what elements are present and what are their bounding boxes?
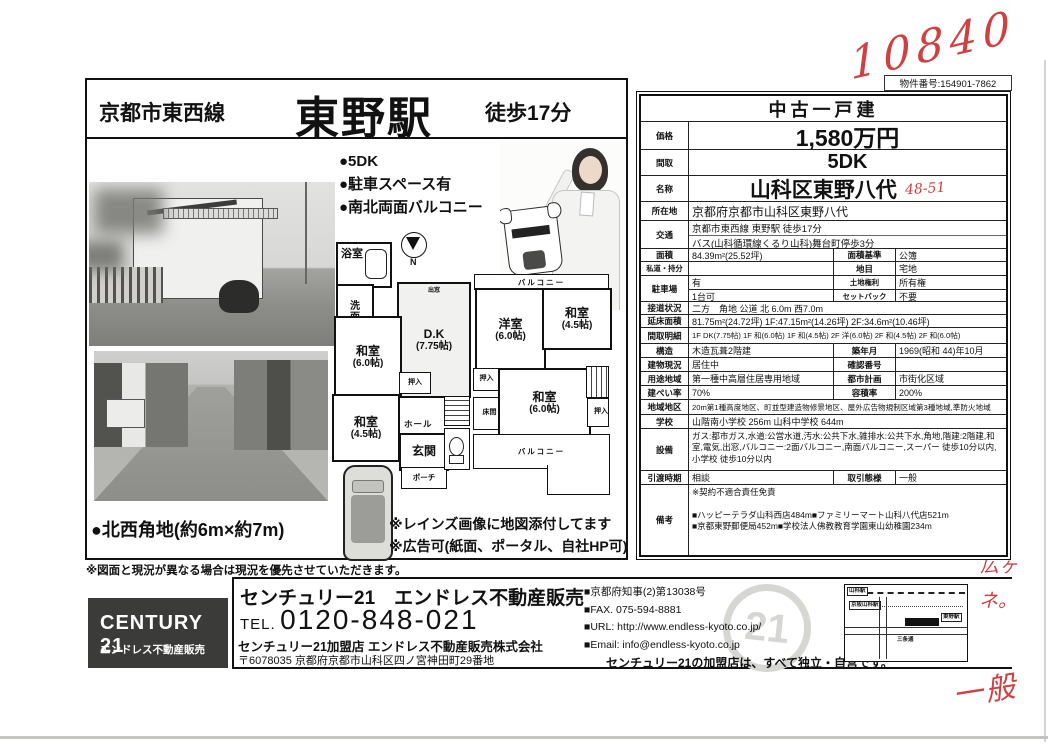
van-shape <box>106 399 145 428</box>
room-label: 和室 <box>565 307 589 321</box>
privacy-blur <box>89 241 123 271</box>
row-value-cell: ※契約不適合責任免責 ■ハッピーテラダ山科西店484m■ファミリーマート山科八代… <box>689 485 1006 555</box>
table-row: 価格1,580万円 <box>641 122 1006 150</box>
row-value-cell: 84.39m²(25.52坪) <box>689 249 834 261</box>
car-icon <box>343 465 393 561</box>
room-label: 玄関 <box>412 445 436 459</box>
rail-line-name: 京都市東西線 <box>99 97 225 127</box>
row-value-cell: 1台可 <box>689 290 834 301</box>
row-header-cell: 学校 <box>641 415 689 428</box>
property-photo-exterior <box>89 182 335 346</box>
ad-note-line: ※広告可(紙面、ポータル、自社HP可) <box>389 535 627 557</box>
ad-note-line: ※レインズ画像に地図添付してます <box>389 513 627 535</box>
stairs-1f <box>444 396 470 426</box>
compass-north-label: N <box>410 257 417 267</box>
room-label: 浴室 <box>341 248 363 261</box>
row-header-cell: 面積基準 <box>834 249 896 261</box>
room-size: (4.5帖) <box>562 320 593 331</box>
room-size: (6.0帖) <box>529 404 560 415</box>
tel-number: 0120-848-021 <box>280 604 478 635</box>
table-row: 交通京都市東西線 東野駅 徒歩17分バス(山科循環線くるり山科)舞台町停歩3分 <box>641 221 1006 249</box>
row-value-cell: 200% <box>896 386 1006 399</box>
room-label: 和室 <box>532 391 556 405</box>
floorplan-room-yoshitsu-2f: 洋室 (6.0帖) <box>475 288 546 372</box>
transit-line: バス(山科循環線くるり山科)舞台町停歩3分 <box>689 235 1006 248</box>
floorplan-room-bath: 浴室 <box>336 242 392 288</box>
table-row: 間取明細1F DK(7.75帖) 1F 和(6.0帖) 1F 和(4.5帖) 2… <box>641 328 1006 344</box>
license-block: ■京都府知事(2)第13038号 ■FAX. 075-594-8881 ■URL… <box>584 584 761 654</box>
license-line: ■Email: info@endless-kyoto.co.jp <box>584 637 761 655</box>
table-row: 間取5DK <box>641 150 1006 176</box>
row-value-cell: 5DK <box>689 150 1006 175</box>
row-header-cell: 間取 <box>641 150 689 175</box>
table-row: 設備ガス:都市ガス,水道:公営水道,汚水:公共下水,雑排水:公共下水,角地,階建… <box>641 429 1006 471</box>
table-row: 延床面積81.75m²(24.72坪) 1F:47.15m²(14.26坪) 2… <box>641 315 1006 328</box>
balcony-label: バルコニー <box>518 277 565 288</box>
floorplan-room-washitsu45-2f: 和室 (4.5帖) <box>542 288 612 350</box>
room-label: 和室 <box>354 416 378 430</box>
license-line: ■FAX. 075-594-8881 <box>584 602 761 620</box>
floorplan-closet-1f: 押入 <box>399 372 431 394</box>
row-value-cell <box>689 262 834 275</box>
row-value-cell: 一般 <box>896 471 1006 484</box>
floorplan-room-washitsu6-2f: 和室 (6.0帖) <box>498 368 591 438</box>
row-header-cell: 地域地区 <box>641 400 689 414</box>
row-header-cell: 築年月 <box>834 344 896 357</box>
floorplan-room-washitsu6-1f: 和室 (6.0帖) <box>334 316 402 398</box>
handwritten-note: 48-51 <box>904 179 945 198</box>
bathtub-icon <box>365 249 387 279</box>
compass-icon: N <box>401 232 427 258</box>
railway-line <box>857 592 965 594</box>
row-header-cell: 用途地域 <box>641 372 689 385</box>
tel-label: TEL. <box>240 616 276 633</box>
century21-logo: CENTURY 21 エンドレス不動産販売 <box>88 598 228 668</box>
row-header-cell: 建ぺい率 <box>641 386 689 399</box>
row-header-cell: 建物現況 <box>641 358 689 371</box>
row-header-cell: 構造 <box>641 344 689 357</box>
row-value-cell: 不要 <box>896 290 1006 301</box>
room-label: 床間 <box>483 409 491 417</box>
agency-address: 〒6078035 京都府京都市山科区四ノ宮神田町29番地 <box>238 652 494 668</box>
mascot-glasses <box>511 225 550 239</box>
privacy-blur <box>94 189 163 235</box>
row-value-cell: 二方 角地 公道 北 6.0m 西7.0m <box>689 302 1006 314</box>
row-header-cell: 引渡時期 <box>641 471 689 484</box>
room-size: (7.75帖) <box>416 341 452 352</box>
balcony-label: バルコニー <box>518 446 565 457</box>
map-road-horizontal <box>845 627 968 635</box>
row-header-cell: 取引態様 <box>834 471 896 484</box>
table-row: 駐車場有土地権利所有権1台可セットバック不要 <box>641 276 1006 302</box>
map-station-label: 京阪山科駅 <box>849 601 881 610</box>
spec-table-rows: 中古一戸建価格1,580万円間取5DK名称山科区東野八代48-51所在地京都府京… <box>639 94 1008 557</box>
table-row: 構造木造瓦葺2階建築年月1969(昭和 44)年10月 <box>641 344 1006 358</box>
floorplan-room-washitsu45-1f: 和室 (4.5帖) <box>332 394 400 462</box>
floorplan-balcony-south: バルコニー <box>473 434 610 469</box>
listing-header: 京都市東西線 東野駅 徒歩17分 <box>87 80 626 139</box>
row-header-cell: 接道状況 <box>641 302 689 314</box>
scooter-shape <box>219 280 258 313</box>
table-row: 学校山階南小学校 256m 山科中学校 644m <box>641 415 1006 429</box>
parking-subrow: 有土地権利所有権 <box>689 276 1006 289</box>
row-header-cell: セットバック <box>834 290 896 301</box>
map-station-label: 東野駅 <box>941 613 962 622</box>
phone-line: TEL. 0120-848-021 <box>240 604 479 636</box>
row-value-cell: 京都市東西線 東野駅 徒歩17分バス(山科循環線くるり山科)舞台町停歩3分 <box>689 221 1006 248</box>
toilet-1f <box>444 428 470 470</box>
houses-right-shape <box>234 360 328 450</box>
scan-edge-artifact <box>0 736 1048 739</box>
floorplan-balcony-south-ext <box>547 465 610 495</box>
disclaimer-note: ※図面と現況が異なる場合は現況を優先させていただきます。 <box>86 562 407 578</box>
table-row: 備考※契約不適合責任免責 ■ハッピーテラダ山科西店484m■ファミリーマート山科… <box>641 485 1006 555</box>
room-label: D.K <box>424 328 445 342</box>
floorplan-closet-2f-right: 押入 <box>587 398 609 427</box>
table-row: 接道状況二方 角地 公道 北 6.0m 西7.0m <box>641 302 1006 315</box>
row-value-cell: 81.75m²(24.72坪) 1F:47.15m²(14.26坪) 2F:34… <box>689 315 1006 327</box>
agent-face-shape <box>579 156 602 184</box>
row-value-cell <box>896 358 1006 371</box>
row-header-cell: 確認番号 <box>834 358 896 371</box>
row-value-cell: 木造瓦葺2階建 <box>689 344 834 357</box>
row-header-cell: 都市計画 <box>834 372 896 385</box>
footer-top-rule <box>232 577 1012 579</box>
room-label: 押入 <box>594 408 602 416</box>
bay-window-label: 出窓 <box>428 285 440 294</box>
table-row: 引渡時期相談取引態様一般 <box>641 471 1006 485</box>
floorplan-entrance: 玄関 <box>399 433 449 471</box>
room-label: 和室 <box>356 345 380 359</box>
row-header-cell: 容積率 <box>834 386 896 399</box>
row-value-cell: 1F DK(7.75帖) 1F 和(6.0帖) 1F 和(4.5帖) 2F 洋(… <box>689 328 1006 343</box>
row-header-cell: 駐車場 <box>641 276 689 301</box>
handwritten-side-note-3: 一般 <box>949 661 1021 715</box>
table-row: 地域地区20m第1種高度地区、町並型建造物修景地区、屋外広告物規制区域第3種地域… <box>641 400 1006 415</box>
mascot-vest <box>522 250 546 271</box>
utility-pole-shape <box>305 182 307 284</box>
room-size: (4.5帖) <box>351 429 382 440</box>
table-title-cell: 中古一戸建 <box>641 96 1006 121</box>
balcony-rail-shape <box>163 208 278 219</box>
row-value-cell: 京都府京都市山科区東野八代 <box>689 202 1006 220</box>
spec-table: 中古一戸建価格1,580万円間取5DK名称山科区東野八代48-51所在地京都府京… <box>636 91 1011 560</box>
logo-company-text: エンドレス不動産販売 <box>100 642 205 657</box>
row-value-cell: 居住中 <box>689 358 834 371</box>
row-header-cell: 地目 <box>834 262 896 275</box>
ad-notes: ※レインズ画像に地図添付してます ※広告可(紙面、ポータル、自社HP可) <box>389 513 627 557</box>
table-row: 建物現況居住中確認番号 <box>641 358 1006 372</box>
walk-time: 徒歩17分 <box>485 97 571 127</box>
footer-divider <box>232 577 234 668</box>
row-value-cell: 所有権 <box>896 276 1006 289</box>
table-row: 所在地京都府京都市山科区東野八代 <box>641 202 1006 221</box>
row-value-cell: 山階南小学校 256m 山科中学校 644m <box>689 415 1006 428</box>
mascot-illustration <box>502 205 564 277</box>
room-size: (6.0帖) <box>353 358 384 369</box>
row-value-cell: 山科区東野八代48-51 <box>689 176 1006 201</box>
row-value-cell: 1,580万円 <box>689 122 1006 149</box>
row-header-cell: 設備 <box>641 429 689 470</box>
row-header-cell: 私道・持分 <box>641 262 689 275</box>
row-header-cell: 備考 <box>641 485 689 555</box>
row-header-cell: 価格 <box>641 122 689 149</box>
row-header-cell: 所在地 <box>641 202 689 220</box>
room-label: ポーチ <box>413 474 436 483</box>
real-estate-flyer-scan: 10840 広ヶ ネ。 一般 物件番号:154901-7862 京都市東西線 東… <box>0 0 1053 744</box>
table-row: 建ぺい率70%容積率200% <box>641 386 1006 400</box>
row-header-cell: 延床面積 <box>641 315 689 327</box>
railway-line-2 <box>875 606 963 607</box>
hall-label: ホール <box>404 418 433 430</box>
table-row: 中古一戸建 <box>641 96 1006 122</box>
agent-collar-shape <box>579 192 595 217</box>
map-road-label: 三条通 <box>897 635 914 643</box>
floorplan-tokonoma: 床間 <box>473 397 500 430</box>
room-label: 押入 <box>408 379 422 387</box>
row-value-cell: 有 <box>689 276 834 289</box>
access-map: 山科駅 京阪山科駅 東野駅 三条通 <box>844 584 968 662</box>
row-value-cell: 70% <box>689 386 834 399</box>
scan-edge-artifact <box>1044 60 1046 742</box>
room-label: 洋室 <box>498 318 522 332</box>
map-station-label: 山科駅 <box>847 587 868 596</box>
listing-panel: 京都市東西線 東野駅 徒歩17分 <box>85 78 628 560</box>
row-header-cell: 土地権利 <box>834 276 896 289</box>
station-name: 東野駅 <box>295 82 433 146</box>
row-value-cell: 宅地 <box>896 262 1006 275</box>
stairs-2f <box>586 366 609 398</box>
floorplan-closet-2f-left: 押入 <box>473 368 500 391</box>
fence-shape <box>89 267 163 303</box>
floorplan-porch: ポーチ <box>401 467 447 489</box>
license-line: ■URL: http://www.endless-kyoto.co.jp/ <box>584 619 761 637</box>
row-header-cell: 間取明細 <box>641 328 689 343</box>
row-value-cell: 公簿 <box>896 249 1006 261</box>
room-label: 押入 <box>480 375 494 383</box>
table-row: 面積84.39m²(25.52坪)面積基準公簿 <box>641 249 1006 262</box>
corner-lot-note: ●北西角地(約6m×約7m) <box>91 516 284 542</box>
row-value-cell: 相談 <box>689 471 834 484</box>
row-value-cell: 有土地権利所有権1台可セットバック不要 <box>689 276 1006 301</box>
parking-subrow: 1台可セットバック不要 <box>689 289 1006 301</box>
transit-line: 京都市東西線 東野駅 徒歩17分 <box>689 221 1006 235</box>
row-value-cell: 市街化区域 <box>896 372 1006 385</box>
handwritten-side-note-2: ネ。 <box>979 586 1017 613</box>
license-line: ■京都府知事(2)第13038号 <box>584 584 761 602</box>
property-number: 物件番号:154901-7862 <box>884 75 1012 91</box>
property-photo-street <box>94 351 328 501</box>
map-company-marker <box>905 618 939 626</box>
row-header-cell: 交通 <box>641 221 689 248</box>
table-row: 私道・持分地目宅地 <box>641 262 1006 276</box>
row-header-cell: 面積 <box>641 249 689 261</box>
row-value-cell: 第一種中高層住居専用地域 <box>689 372 834 385</box>
table-row: 用途地域第一種中高層住居専用地域都市計画市街化区域 <box>641 372 1006 386</box>
row-value-cell: ガス:都市ガス,水道:公営水道,汚水:公共下水,雑排水:公共下水,角地,階建:2… <box>689 429 1006 470</box>
row-value-cell: 20m第1種高度地区、町並型建造物修景地区、屋外広告物規制区域第3種地域,準防火… <box>689 400 1006 414</box>
row-value-cell: 1969(昭和 44)年10月 <box>896 344 1006 357</box>
table-row: 名称山科区東野八代48-51 <box>641 176 1006 202</box>
room-size: (6.0帖) <box>495 331 526 342</box>
row-header-cell: 名称 <box>641 176 689 201</box>
